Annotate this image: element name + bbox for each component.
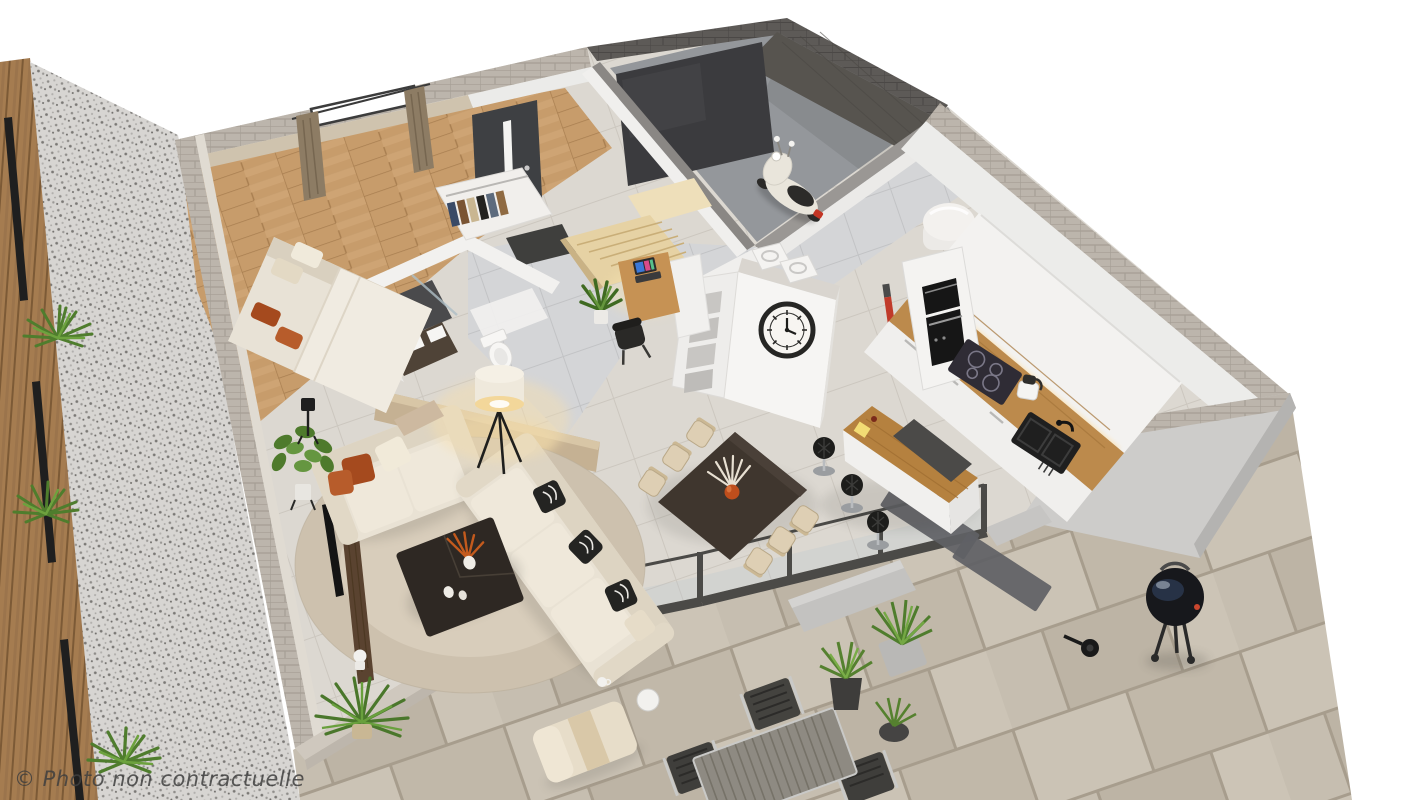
floorplan-render: © Photo non contractuelle (0, 0, 1422, 800)
bust-sculpture (354, 650, 367, 671)
clock-wall (724, 258, 840, 428)
side-table (637, 689, 659, 711)
watermark: © Photo non contractuelle (14, 767, 305, 791)
wall-clock (761, 304, 813, 356)
